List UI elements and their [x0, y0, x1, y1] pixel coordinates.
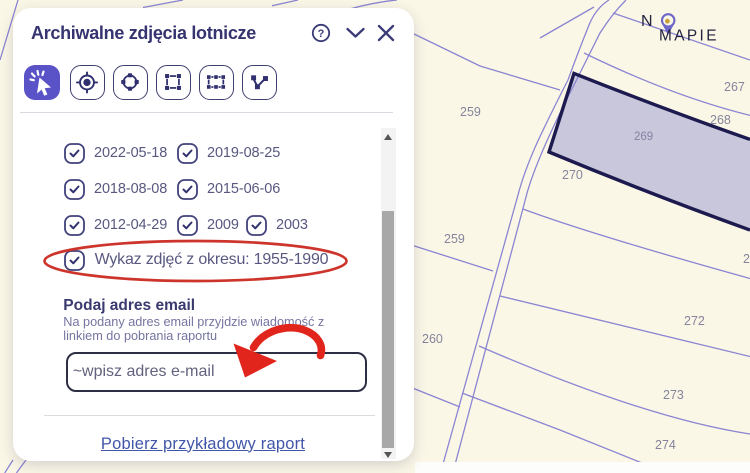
svg-text:269: 269	[634, 131, 653, 143]
svg-text:259: 259	[444, 232, 465, 246]
svg-text:271: 271	[743, 252, 750, 266]
svg-text:?: ?	[318, 28, 325, 40]
svg-text:260: 260	[422, 332, 443, 346]
svg-text:273: 273	[663, 388, 684, 402]
svg-text:272: 272	[684, 314, 705, 328]
svg-text:259: 259	[460, 105, 481, 119]
svg-text:MAPIE: MAPIE	[659, 28, 719, 45]
svg-text:267: 267	[724, 80, 745, 94]
svg-text:N: N	[641, 13, 653, 30]
svg-text:270: 270	[562, 168, 583, 182]
svg-text:274: 274	[655, 438, 676, 452]
svg-text:268: 268	[710, 113, 731, 127]
